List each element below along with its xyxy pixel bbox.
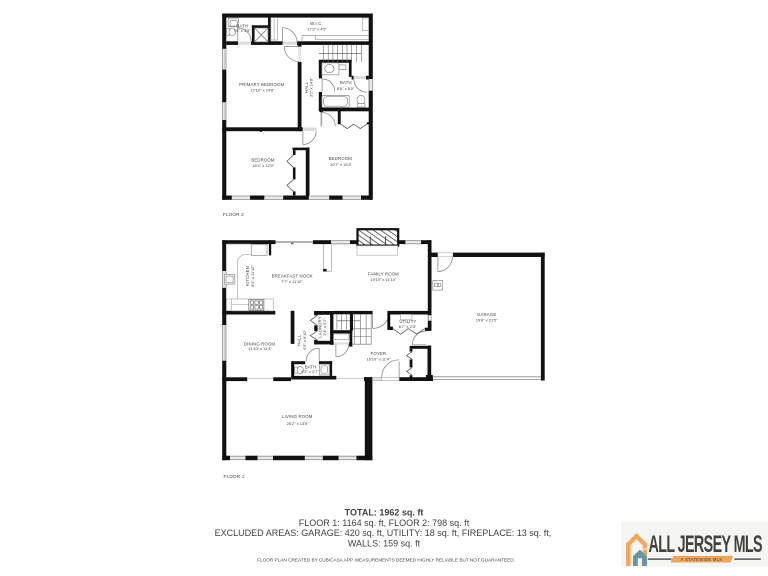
svg-text:BREAKFAST NOOK: BREAKFAST NOOK xyxy=(272,273,313,278)
svg-text:19'8" x 21'5": 19'8" x 21'5" xyxy=(476,317,499,322)
svg-text:PRIMARY BEDROOM: PRIMARY BEDROOM xyxy=(239,82,284,87)
svg-text:FLOOR 1: FLOOR 1 xyxy=(224,474,245,479)
svg-text:10'7" x 15'3": 10'7" x 15'3" xyxy=(330,162,353,167)
svg-text:FOYER: FOYER xyxy=(371,351,387,356)
svg-text:3'2" x 14'8": 3'2" x 14'8" xyxy=(309,77,314,97)
svg-text:2'4" x 5'2": 2'4" x 5'2" xyxy=(322,318,327,336)
svg-text:17'2" x 4'5": 17'2" x 4'5" xyxy=(307,26,327,31)
svg-text:FAMILY ROOM: FAMILY ROOM xyxy=(368,272,399,277)
svg-text:16'10" x 11'4": 16'10" x 11'4" xyxy=(367,357,391,362)
svg-text:ALL JERSEY MLS: ALL JERSEY MLS xyxy=(649,531,763,558)
svg-text:WALLS: 159 sq. ft: WALLS: 159 sq. ft xyxy=(348,538,421,548)
svg-text:12'10" x 14'8": 12'10" x 14'8" xyxy=(250,87,275,92)
svg-text:BATH: BATH xyxy=(340,80,352,85)
svg-text:4'3" x 2'7": 4'3" x 2'7" xyxy=(301,369,319,374)
svg-text:11'10" x 11'4": 11'10" x 11'4" xyxy=(248,346,272,351)
svg-text:EXCLUDED AREAS: GARAGE: 420 sq: EXCLUDED AREAS: GARAGE: 420 sq. ft, UTIL… xyxy=(215,528,552,538)
svg-text:FLOOR 2: FLOOR 2 xyxy=(223,212,244,217)
svg-text:BEDROOM: BEDROOM xyxy=(251,158,275,163)
svg-text:8'0" x 11'10": 8'0" x 11'10" xyxy=(250,265,255,287)
svg-text:W.I.C.: W.I.C. xyxy=(310,21,323,26)
svg-text:19'10" x 11'10": 19'10" x 11'10" xyxy=(370,277,397,282)
svg-text:7'6" x 4'5": 7'6" x 4'5" xyxy=(233,28,251,33)
svg-text:TOTAL: 1962 sq. ft: TOTAL: 1962 sq. ft xyxy=(345,508,424,518)
svg-text:6'5" x 8'10": 6'5" x 8'10" xyxy=(302,329,307,349)
svg-text:8'6" x 8'0": 8'6" x 8'0" xyxy=(337,86,355,91)
svg-text:BEDROOM: BEDROOM xyxy=(329,156,353,161)
svg-text:FLOOR PLAN CREATED BY CUBICASA: FLOOR PLAN CREATED BY CUBICASA APP. MEAS… xyxy=(257,557,515,562)
svg-text:7'7" x 11'10": 7'7" x 11'10" xyxy=(281,279,303,284)
svg-text:FLOOR 1: 1164 sq. ft, FLOOR 2:: FLOOR 1: 1164 sq. ft, FLOOR 2: 798 sq. f… xyxy=(299,518,470,528)
svg-text:LIVING ROOM: LIVING ROOM xyxy=(282,414,313,419)
svg-text:A STATEWIDE MLS: A STATEWIDE MLS xyxy=(681,557,723,562)
svg-text:16'4" x 12'0": 16'4" x 12'0" xyxy=(252,163,275,168)
svg-text:25'2" x 13'5": 25'2" x 13'5" xyxy=(287,421,310,426)
svg-text:6'7" x 2'8": 6'7" x 2'8" xyxy=(399,324,417,329)
